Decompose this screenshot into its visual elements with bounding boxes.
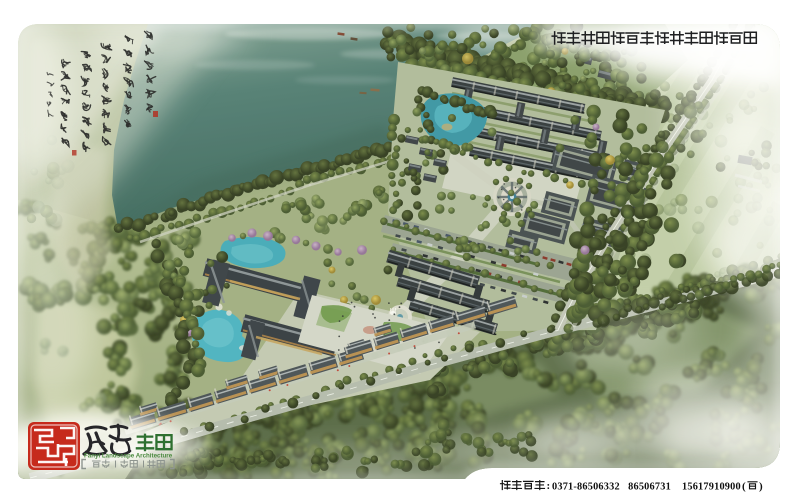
svg-text::: : (547, 480, 551, 492)
svg-text:): ) (759, 481, 763, 493)
svg-text:Fanyi Landscape Architecture: Fanyi Landscape Architecture (84, 453, 173, 460)
svg-text:(: ( (742, 481, 746, 493)
svg-text:0371-86506332 86506731 15: 0371-86506332 86506731 15617910900 (552, 482, 741, 493)
